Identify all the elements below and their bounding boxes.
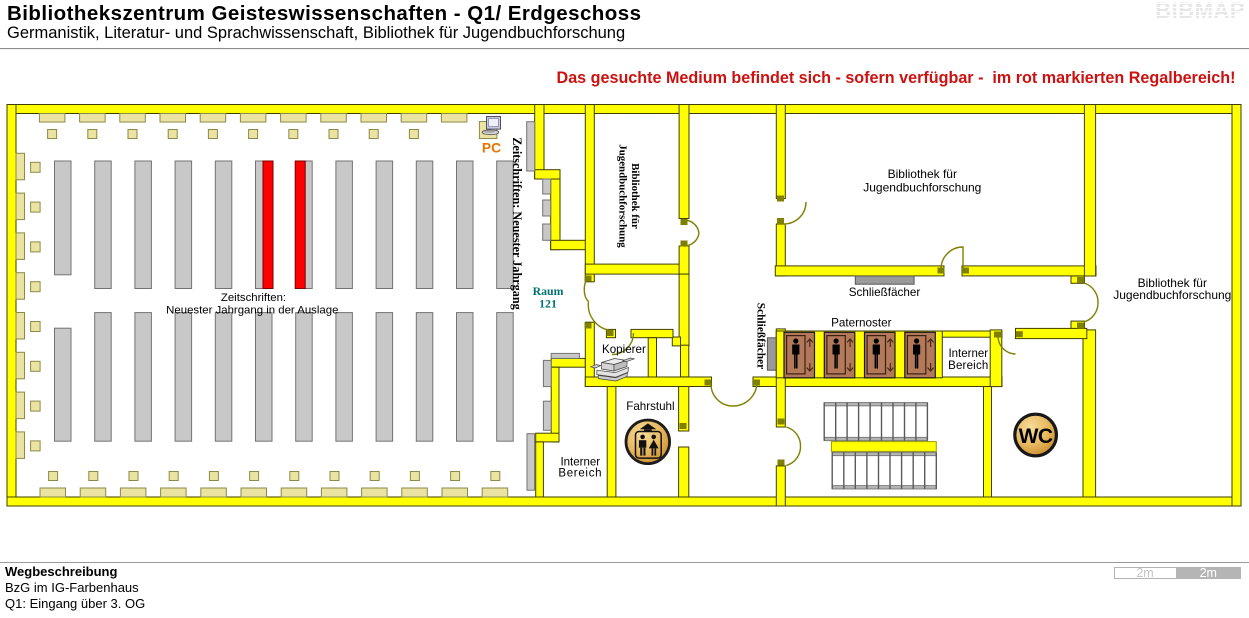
svg-text:WC: WC [1019,425,1053,448]
svg-text:Neuester Jahrgang in der Ausla: Neuester Jahrgang in der Auslage [166,305,338,317]
svg-text:Schließfächer: Schließfächer [849,286,921,299]
svg-text:Jugendbuchforschung: Jugendbuchforschung [863,181,981,195]
svg-text:Zeitschriften: Neuester Jahrga: Zeitschriften: Neuester Jahrgang [510,137,524,309]
svg-text:PC: PC [482,141,501,156]
svg-text:Bibliothek für: Bibliothek für [629,163,641,229]
svg-text:Bereich: Bereich [558,468,602,480]
svg-text:Jugendbuchforschung: Jugendbuchforschung [617,144,629,248]
svg-text:Zeitschriften:: Zeitschriften: [221,292,286,304]
svg-text:Kopierer: Kopierer [602,343,646,356]
svg-text:Jugendbuchforschung: Jugendbuchforschung [1113,288,1231,302]
svg-text:Schließfächer: Schließfächer [754,303,766,369]
svg-text:Paternoster: Paternoster [831,316,892,329]
svg-text:Bibliothek für: Bibliothek für [888,167,957,181]
svg-text:121: 121 [539,297,557,311]
svg-text:Interner: Interner [948,348,988,360]
svg-text:Bereich: Bereich [948,360,988,372]
svg-text:Fahrstuhl: Fahrstuhl [626,400,674,413]
